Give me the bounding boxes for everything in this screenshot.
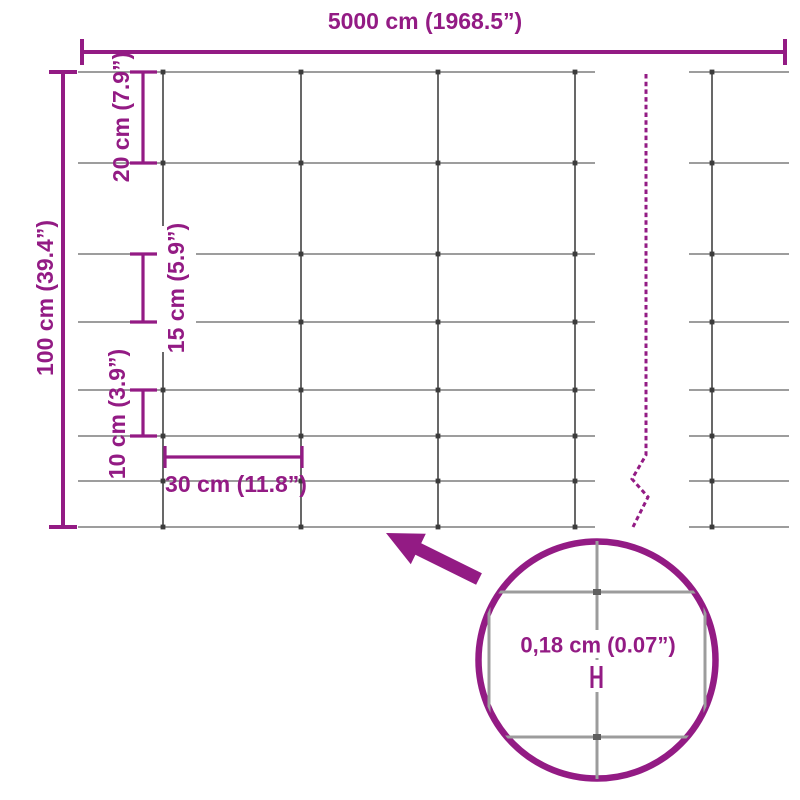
mesh-joint	[436, 479, 441, 484]
dimension-total-width: 5000 cm (1968.5”)	[82, 8, 785, 65]
wire-thickness-label: 0,18 cm (0.07”)	[520, 633, 675, 658]
mesh-joint	[161, 70, 166, 75]
dimension-row-20: 20 cm (7.9”)	[108, 52, 157, 182]
dimension-total-height: 100 cm (39.4”)	[32, 72, 77, 527]
mesh-joint	[436, 388, 441, 393]
mesh-joint	[161, 161, 166, 166]
mesh-joint	[299, 252, 304, 257]
mesh-joint	[710, 434, 715, 439]
mesh-joint	[299, 525, 304, 530]
mesh-joint	[436, 525, 441, 530]
mesh-joint	[573, 525, 578, 530]
mesh-joint	[710, 70, 715, 75]
mesh-joint	[161, 434, 166, 439]
zoom-arrow-icon	[386, 533, 482, 585]
mesh-joint	[573, 388, 578, 393]
mesh-joint	[299, 320, 304, 325]
mesh-joint	[299, 434, 304, 439]
mesh-joint	[573, 320, 578, 325]
mesh-joint	[710, 388, 715, 393]
total-width-label: 5000 cm (1968.5”)	[328, 8, 522, 34]
total-height-label: 100 cm (39.4”)	[32, 220, 58, 376]
mesh-joint	[710, 525, 715, 530]
mesh-joint	[436, 70, 441, 75]
mesh-joint	[710, 161, 715, 166]
row-15-label: 15 cm (5.9”)	[163, 223, 189, 353]
mesh-joint	[710, 479, 715, 484]
mesh-joint	[299, 161, 304, 166]
mesh-joint	[436, 320, 441, 325]
row-10-label: 10 cm (3.9”)	[104, 349, 130, 479]
mesh-joint	[710, 320, 715, 325]
mesh-joint	[710, 252, 715, 257]
magnified-joint	[593, 589, 601, 595]
mesh-joint	[573, 70, 578, 75]
mesh-joint	[161, 525, 166, 530]
break-line	[632, 74, 648, 527]
dimension-row-15: 15 cm (5.9”)	[130, 223, 196, 353]
mesh-joint	[299, 388, 304, 393]
mesh-joint	[436, 161, 441, 166]
mesh-joint	[573, 161, 578, 166]
mesh-joint	[573, 479, 578, 484]
mesh-joint	[299, 70, 304, 75]
row-20-label: 20 cm (7.9”)	[108, 52, 134, 182]
magnifier: 0,18 cm (0.07”)	[386, 533, 720, 782]
mesh-joint	[436, 434, 441, 439]
column-30-label: 30 cm (11.8”)	[165, 471, 307, 497]
mesh-joint	[161, 388, 166, 393]
mesh-joint	[573, 434, 578, 439]
mesh-joint	[573, 252, 578, 257]
dimension-row-10: 10 cm (3.9”)	[104, 349, 157, 479]
dimension-column-30: 30 cm (11.8”)	[165, 446, 307, 497]
magnified-joint	[593, 734, 601, 740]
mesh-joint	[436, 252, 441, 257]
fence-dimension-diagram: 5000 cm (1968.5”) 100 cm (39.4”) 20 cm (…	[0, 0, 800, 800]
